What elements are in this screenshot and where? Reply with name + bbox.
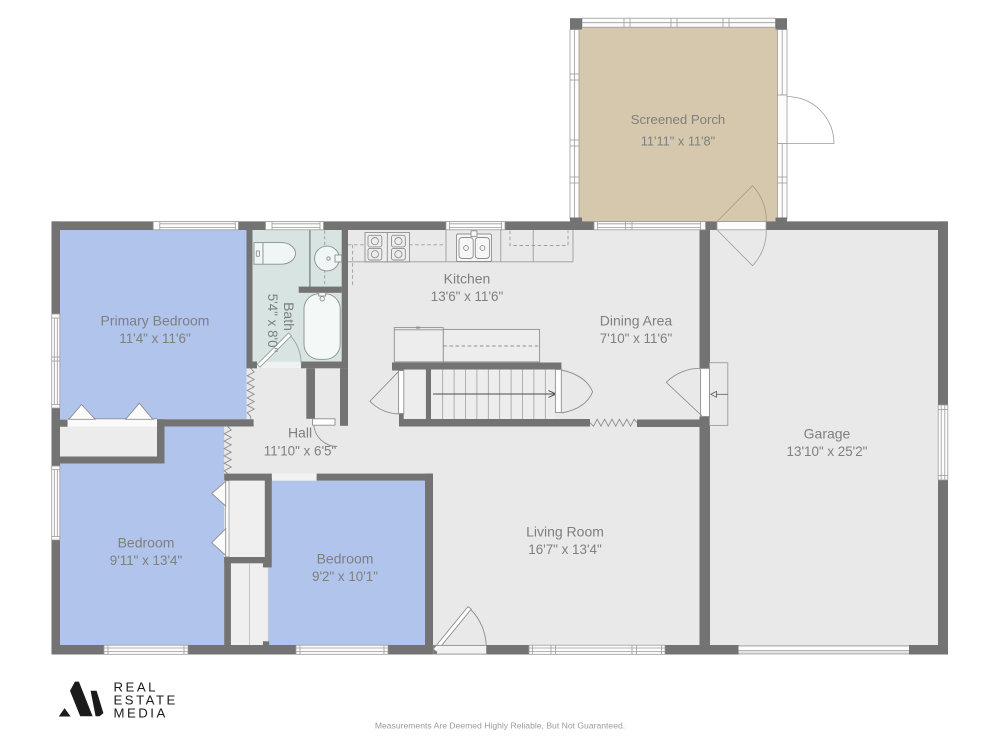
svg-text:11'11" x 11'8": 11'11" x 11'8": [641, 134, 715, 149]
svg-text:11'10" x 6'5": 11'10" x 6'5": [264, 444, 337, 459]
svg-text:Bedroom: Bedroom: [118, 535, 175, 551]
svg-text:Screened Porch: Screened Porch: [631, 112, 726, 127]
svg-text:16'7" x 13'4": 16'7" x 13'4": [528, 542, 602, 557]
svg-text:Garage: Garage: [804, 426, 851, 442]
svg-text:Hall: Hall: [288, 425, 312, 441]
svg-text:11'4" x 11'6": 11'4" x 11'6": [119, 331, 191, 346]
svg-text:5'4" x 8'0": 5'4" x 8'0": [265, 294, 280, 353]
svg-text:13'6" x 11'6": 13'6" x 11'6": [431, 289, 504, 304]
svg-text:13'10" x 25'2": 13'10" x 25'2": [787, 444, 868, 459]
svg-text:Bath: Bath: [281, 302, 297, 331]
svg-text:9'2" x 10'1": 9'2" x 10'1": [312, 569, 378, 584]
svg-text:Living Room: Living Room: [526, 524, 604, 540]
svg-text:Bedroom: Bedroom: [317, 551, 374, 567]
svg-text:9'11" x 13'4": 9'11" x 13'4": [110, 553, 183, 568]
svg-text:Measurements Are Deemed Highly: Measurements Are Deemed Highly Reliable,…: [375, 721, 625, 731]
svg-text:7'10" x 11'6": 7'10" x 11'6": [600, 331, 673, 346]
svg-text:MEDIA: MEDIA: [114, 705, 168, 720]
svg-text:Primary Bedroom: Primary Bedroom: [101, 313, 210, 329]
svg-text:Dining Area: Dining Area: [600, 313, 673, 329]
svg-text:Kitchen: Kitchen: [444, 271, 491, 287]
